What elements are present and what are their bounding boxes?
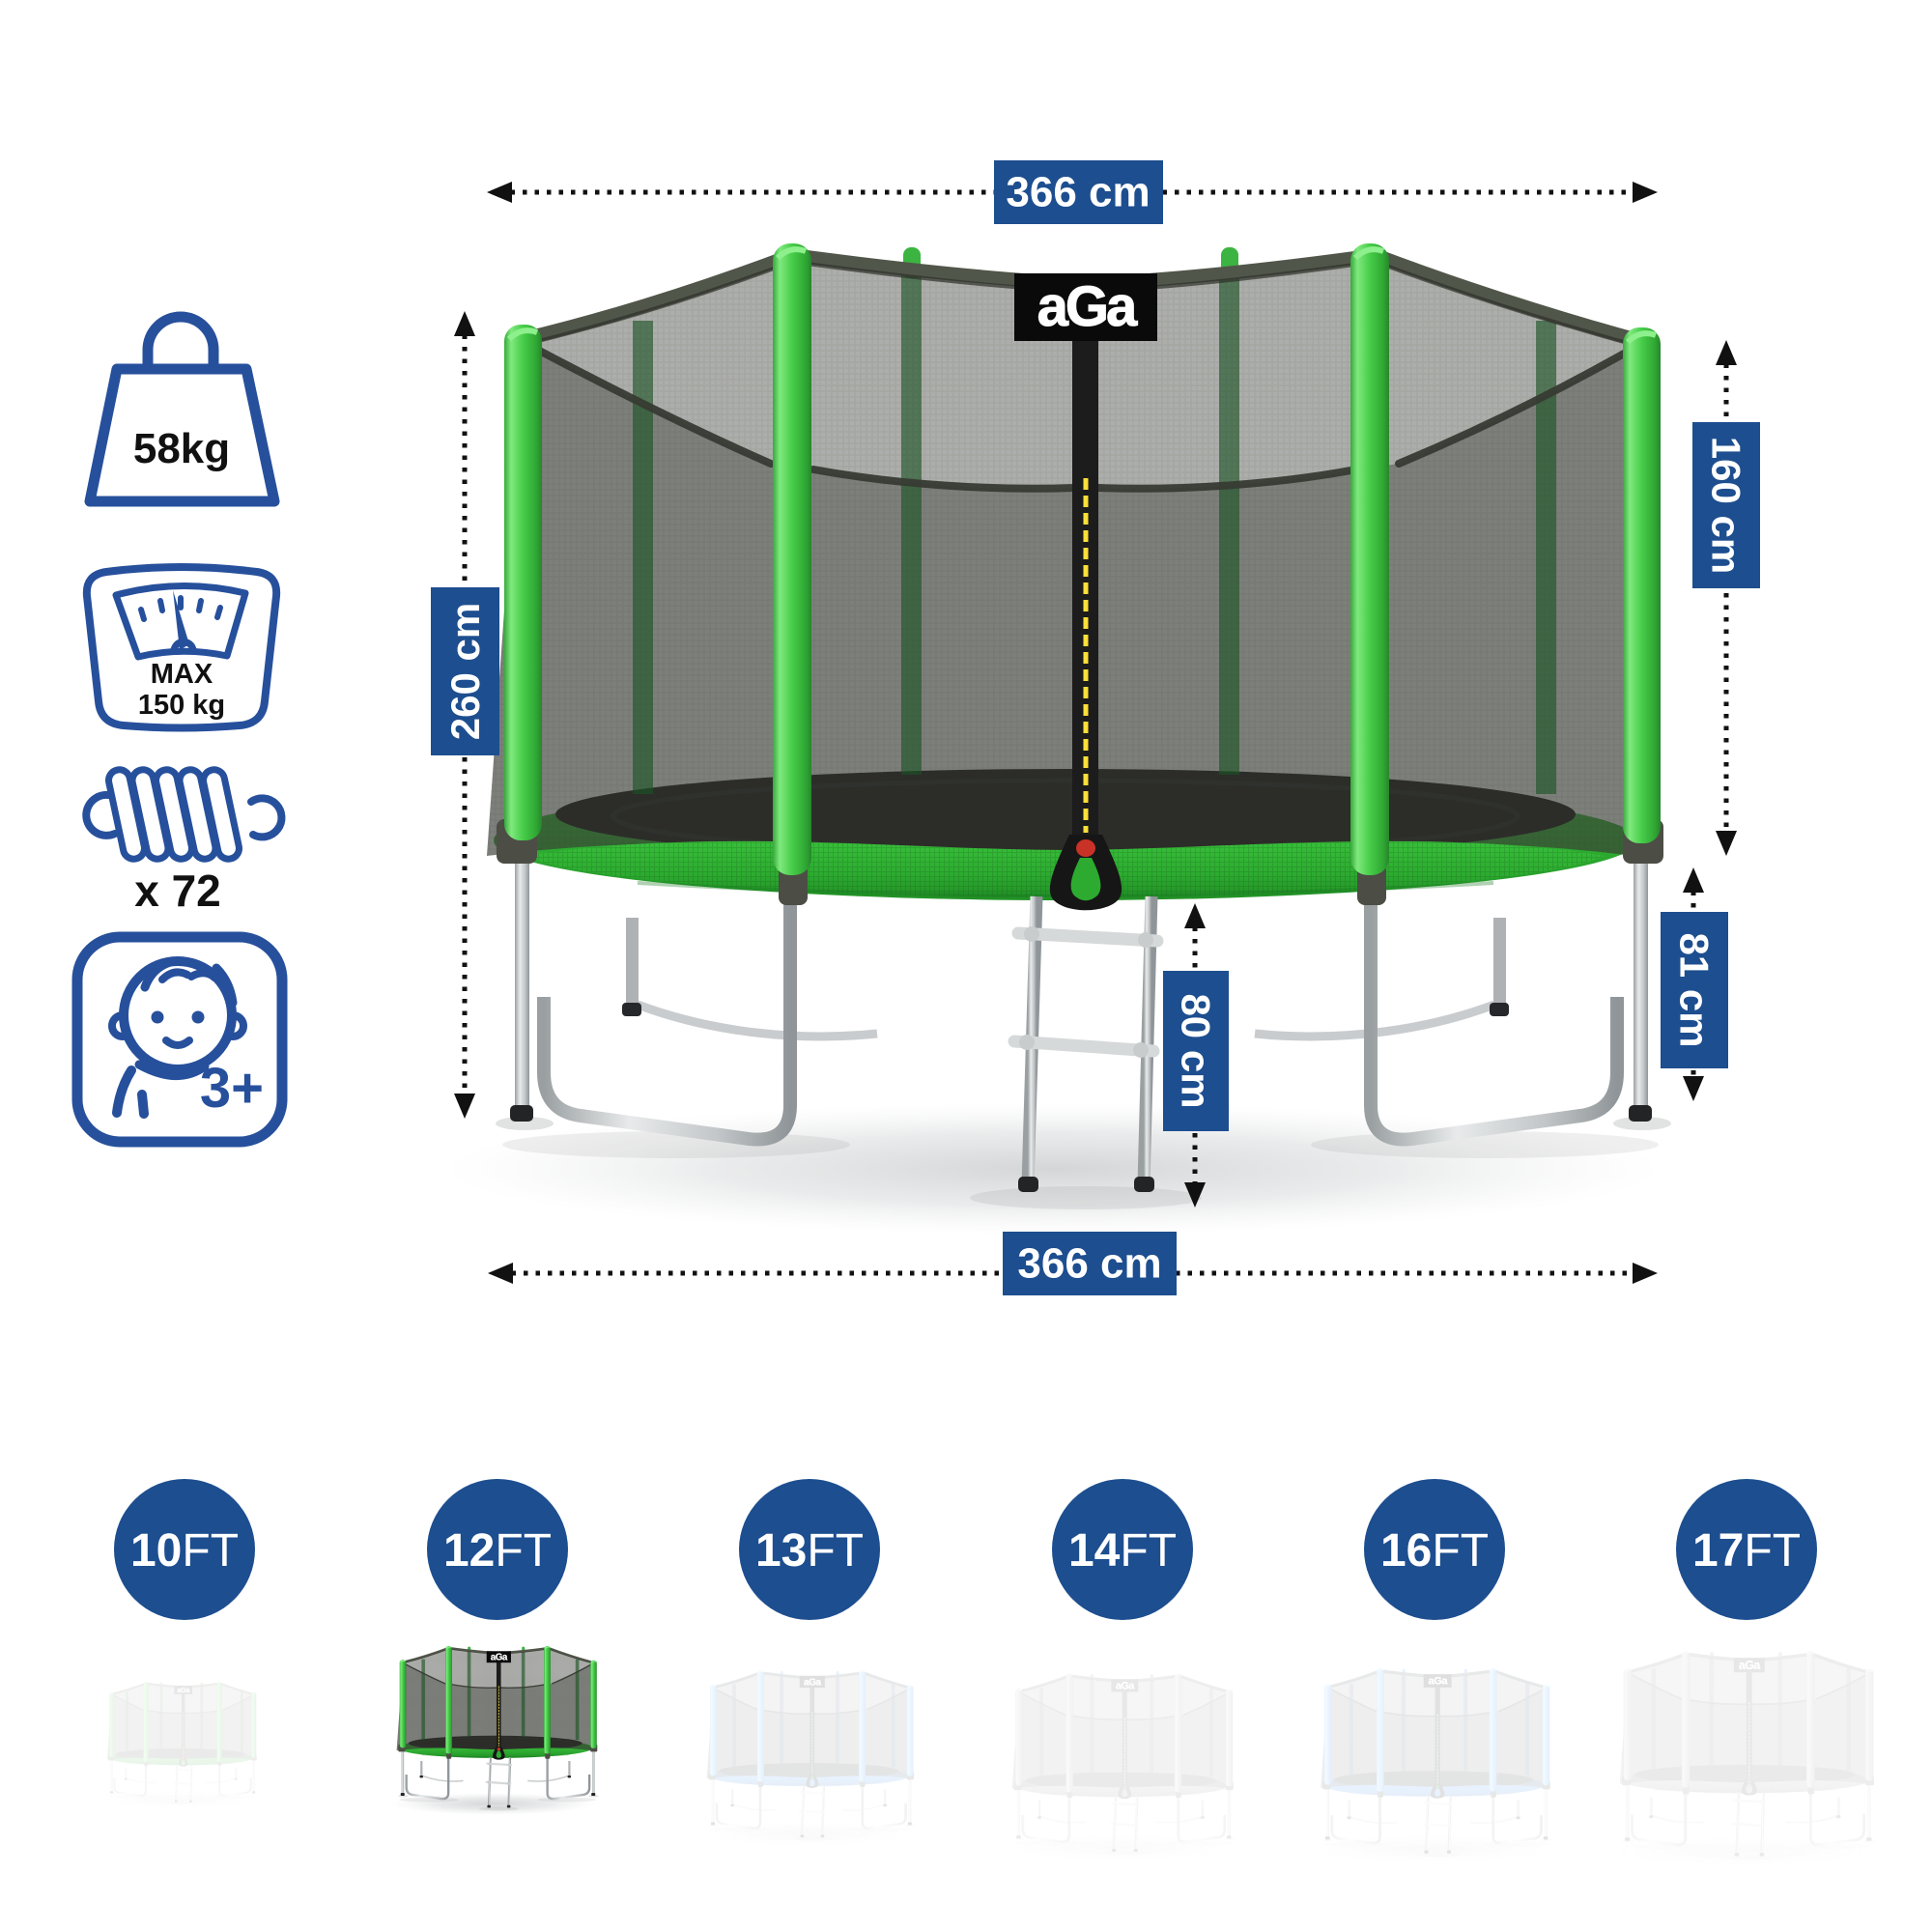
svg-text:17FT: 17FT bbox=[1692, 1525, 1801, 1577]
svg-text:10FT: 10FT bbox=[130, 1525, 239, 1577]
svg-text:MAX: MAX bbox=[151, 659, 213, 690]
svg-text:14FT: 14FT bbox=[1068, 1525, 1177, 1577]
svg-text:260 cm: 260 cm bbox=[442, 603, 488, 740]
svg-text:81 cm: 81 cm bbox=[1672, 932, 1718, 1047]
svg-text:16FT: 16FT bbox=[1380, 1525, 1489, 1577]
svg-text:12FT: 12FT bbox=[443, 1525, 552, 1577]
svg-text:160 cm: 160 cm bbox=[1704, 437, 1749, 574]
svg-text:80 cm: 80 cm bbox=[1174, 993, 1219, 1108]
svg-text:x 72: x 72 bbox=[134, 866, 221, 916]
svg-text:aGa: aGa bbox=[1037, 275, 1138, 338]
svg-text:366 cm: 366 cm bbox=[1017, 1240, 1161, 1288]
svg-text:13FT: 13FT bbox=[755, 1525, 864, 1577]
svg-text:366 cm: 366 cm bbox=[1006, 169, 1150, 216]
svg-text:3+: 3+ bbox=[200, 1057, 264, 1120]
svg-text:58kg: 58kg bbox=[133, 425, 230, 472]
svg-text:150 kg: 150 kg bbox=[138, 690, 225, 721]
